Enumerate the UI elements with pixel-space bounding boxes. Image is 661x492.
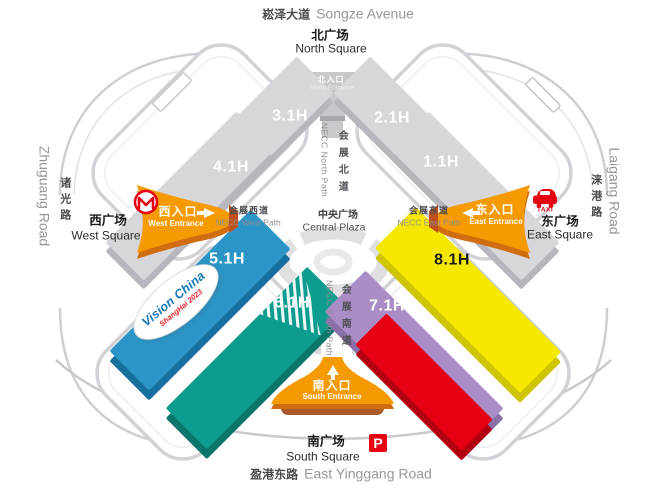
south-entrance-en: South Entrance [302,393,361,401]
songze-avenue-zh: 崧泽大道 [262,9,310,22]
necc-north-path-zh: 会展北道 [336,130,347,198]
necc-west-path-en: NECC West Path [215,219,281,228]
north-square-zh: 北广场 [311,29,349,42]
venue-map-graphic [0,0,661,492]
hall-label-1-1H: 1.1H [423,155,459,172]
songze-avenue-label: 崧泽大道 Songze Avenue [262,7,414,22]
south-square-zh: 南广场 [307,435,345,448]
hall-label-3-1H: 3.1H [272,109,308,126]
necc-south-path-zh: 会展南道 [339,284,350,352]
hall-label-4-1H: 4.1H [213,160,249,177]
metro-icon [135,191,157,213]
north-entrance-zh: 北入口 [318,76,345,84]
central-plaza-zh: 中央广场 [318,211,358,222]
necc-east-path-zh: 会展东道 [409,206,449,215]
zhuguang-road-en: Zhuguang Road [37,146,52,246]
west-square-zh: 西广场 [89,214,127,227]
parking-icon: P [369,434,387,452]
west-entrance-zh: 西入口 [158,206,197,219]
hall-label-8-1H: 8.1H [434,253,470,270]
yinggang-road-en: East Yinggang Road [304,467,432,482]
laigang-road-zh: 涞港路 [589,174,601,222]
north-entrance-en: North Entrance [310,86,354,93]
east-entrance-zh: 东入口 [475,204,514,217]
taxi-label: TAXI [537,208,553,215]
necc-west-path-zh: 会展西道 [229,206,269,215]
central-plaza-en: Central Plaza [302,222,365,233]
hall-label-6-1H: 6.1H [274,296,310,313]
west-square-en: West Square [71,230,140,243]
hall-label-2-1H: 2.1H [374,111,410,128]
east-square-en: East Square [527,229,593,242]
necc-north-path-en: NECC North Path [320,123,329,198]
south-square-en: South Square [286,451,359,464]
yinggang-road-zh: 盈港东路 [250,469,298,482]
yinggang-road-label: 盈港东路 East Yinggang Road [250,467,432,482]
laigang-road-en: Laigang Road [607,147,622,234]
south-entrance-zh: 南入口 [312,380,351,393]
east-entrance-en: East Entrance [469,218,522,226]
zhuguang-road-zh: 诸光路 [58,177,70,225]
necc-south-path-en: NECC South Path [325,280,334,356]
hall-label-5-1H: 5.1H [209,252,245,269]
west-entrance-en: West Entrance [148,220,203,228]
songze-avenue-en: Songze Avenue [316,7,414,22]
east-square-zh: 东广场 [541,215,579,228]
north-square-en: North Square [295,43,366,56]
hall-label-7-1H: 7.1H [369,299,405,316]
necc-shanghai-venue-map: 崧泽大道 Songze Avenue 北广场 North Square 北入口 … [0,0,661,492]
necc-east-path-en: NECC East Path [397,219,460,228]
